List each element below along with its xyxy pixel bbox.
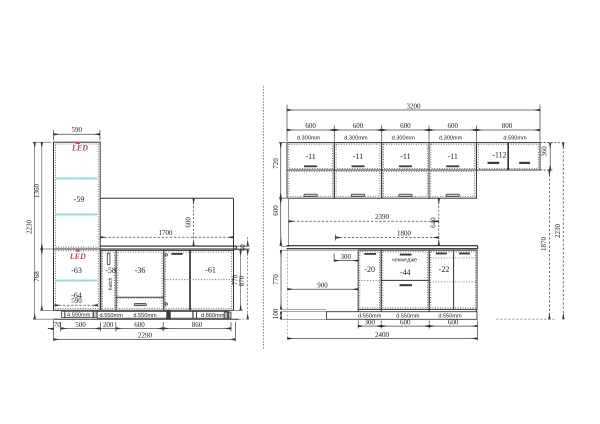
svg-text:360: 360 <box>540 146 548 157</box>
svg-text:600: 600 <box>353 122 364 130</box>
svg-text:600: 600 <box>272 205 280 216</box>
svg-text:d.300mm: d.300mm <box>439 136 463 142</box>
svg-text:900: 900 <box>317 281 328 289</box>
svg-text:600: 600 <box>447 122 458 130</box>
svg-text:300: 300 <box>364 319 375 327</box>
svg-text:hatch: hatch <box>108 278 114 291</box>
svg-text:600: 600 <box>184 217 192 228</box>
svg-text:-61: -61 <box>205 266 216 275</box>
svg-text:640: 640 <box>429 217 437 228</box>
svg-text:2230: 2230 <box>554 224 562 239</box>
svg-text:100: 100 <box>272 308 280 319</box>
svg-text:600: 600 <box>134 321 145 329</box>
svg-text:600: 600 <box>400 122 411 130</box>
svg-text:-63: -63 <box>71 266 82 275</box>
svg-text:590: 590 <box>71 297 82 305</box>
svg-text:200: 200 <box>103 321 114 329</box>
svg-text:d.300mm: d.300mm <box>392 136 416 142</box>
svg-text:500: 500 <box>75 321 86 329</box>
svg-text:d.300mm: d.300mm <box>344 136 368 142</box>
svg-text:-59: -59 <box>74 195 85 204</box>
svg-text:2290: 2290 <box>138 332 153 340</box>
svg-text:2390: 2390 <box>375 213 390 221</box>
svg-text:LED: LED <box>71 144 88 153</box>
svg-text:770: 770 <box>272 274 280 285</box>
svg-text:800: 800 <box>502 122 513 130</box>
svg-text:600: 600 <box>400 319 411 327</box>
svg-text:1360: 1360 <box>33 184 41 199</box>
svg-text:70: 70 <box>54 321 62 329</box>
svg-text:-58: -58 <box>105 266 116 275</box>
svg-text:768: 768 <box>33 271 41 282</box>
svg-text:720: 720 <box>272 158 280 169</box>
svg-text:1800: 1800 <box>397 229 412 237</box>
svg-text:-11: -11 <box>353 152 363 161</box>
svg-text:300: 300 <box>340 253 351 261</box>
svg-text:4.590mm: 4.590mm <box>67 313 91 319</box>
svg-text:-22: -22 <box>439 265 450 274</box>
svg-text:860: 860 <box>192 321 203 329</box>
svg-text:870: 870 <box>238 275 246 286</box>
svg-text:LED: LED <box>69 252 86 261</box>
svg-text:-11: -11 <box>305 152 315 161</box>
svg-text:-112: -112 <box>492 150 506 159</box>
svg-text:-11: -11 <box>400 152 410 161</box>
svg-text:-36: -36 <box>135 266 146 275</box>
svg-text:d.300mm: d.300mm <box>297 136 321 142</box>
svg-text:2400: 2400 <box>375 331 390 339</box>
svg-text:d.550mm: d.550mm <box>100 313 124 319</box>
svg-text:1870: 1870 <box>540 237 548 252</box>
svg-text:-20: -20 <box>364 265 375 274</box>
svg-text:-44: -44 <box>400 268 411 277</box>
svg-text:600: 600 <box>448 319 459 327</box>
svg-text:d.590mm: d.590mm <box>503 136 527 142</box>
svg-text:-11: -11 <box>448 152 458 161</box>
svg-text:1700: 1700 <box>159 229 174 237</box>
svg-text:d.550mm: d.550mm <box>133 313 157 319</box>
svg-text:3200: 3200 <box>407 102 422 110</box>
svg-text:600: 600 <box>305 122 316 130</box>
svg-text:чекмедже: чекмедже <box>392 257 417 263</box>
svg-text:2230: 2230 <box>26 220 34 235</box>
svg-text:590: 590 <box>71 126 82 134</box>
svg-text:d.860mm: d.860mm <box>201 313 225 319</box>
